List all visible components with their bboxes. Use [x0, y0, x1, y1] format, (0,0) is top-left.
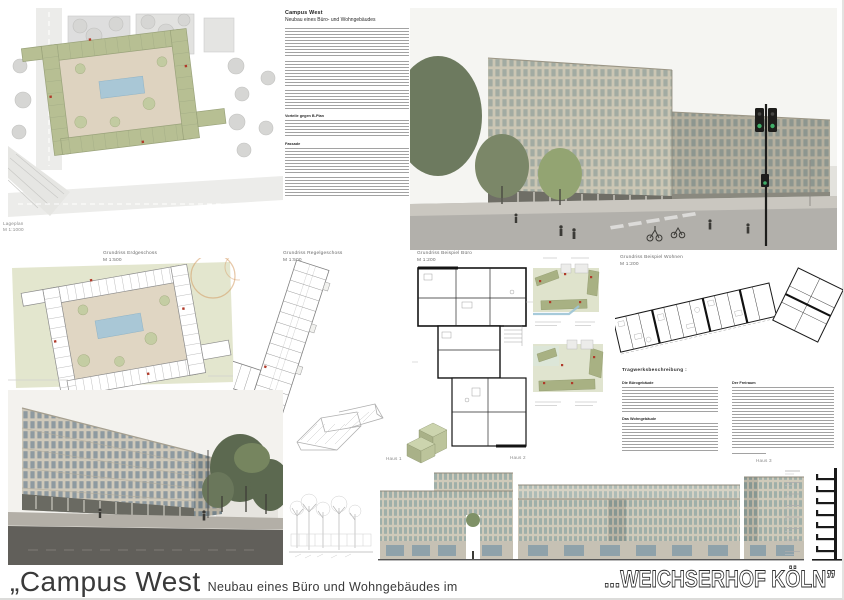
plan-erdgeschoss: [8, 258, 240, 390]
paragraph: [285, 61, 409, 87]
plan-beispiel-wohnen: [615, 266, 843, 366]
project-description: Campus West Neubau eines Büro- und Wohng…: [285, 10, 409, 197]
presentation-board: Lageplan M 1:1000 Campus West Neubau ein…: [0, 0, 844, 600]
paragraph: [622, 387, 718, 413]
board-title-right-text: ...WEICHSERHOF KÖLN”: [604, 566, 836, 593]
ground-line: [378, 559, 804, 560]
description-section1: Vorteile gegen B-Plan: [285, 114, 409, 118]
paragraph: [732, 453, 766, 456]
structure-sub3: Der Freiraum: [732, 381, 834, 385]
structure-heading: Tragwerksbeschreibung :: [622, 368, 836, 373]
elevation-haus1: [380, 473, 513, 559]
structure-col2: Der Freiraum: [732, 377, 834, 456]
paragraph: [285, 90, 409, 110]
street-rendering: [8, 390, 283, 565]
key-diagram-a: [531, 256, 605, 332]
elevation-haus2: [518, 485, 740, 559]
elevation-label-haus1: Haus 1: [386, 456, 402, 461]
board-title-right: ...WEICHSERHOF KÖLN”: [602, 563, 840, 595]
description-title: Campus West: [285, 10, 409, 16]
street-sketch: [287, 490, 377, 566]
site-plan-drawing: [8, 8, 283, 240]
level-dimensions: [784, 466, 810, 562]
building-wing-facade: [672, 112, 830, 206]
paragraph: [285, 120, 409, 138]
structure-sub2: Das Wohngebäude: [622, 417, 718, 421]
description-subtitle: Neubau eines Büro- und Wohngebäudes: [285, 17, 409, 23]
paragraph: [285, 148, 409, 174]
paragraph: [732, 387, 834, 449]
paragraph: [622, 423, 718, 453]
structure-description: Tragwerksbeschreibung : Die Bürogebäude …: [622, 368, 836, 456]
road: [8, 526, 283, 565]
aerial-sketch: [287, 392, 395, 466]
paragraph: [285, 28, 409, 58]
structure-col1: Die Bürogebäude Das Wohngebäude: [622, 377, 718, 456]
structure-sub1: Die Bürogebäude: [622, 381, 718, 385]
facade-section-detail: [812, 464, 842, 564]
description-section2: Fassade: [285, 142, 409, 146]
street-elevation: [378, 463, 810, 565]
board-title: „Campus West Neubau eines Büro und Wohng…: [10, 566, 458, 598]
key-diagram-b: [531, 334, 611, 412]
board-title-sub: Neubau eines Büro und Wohngebäudes im: [208, 580, 458, 594]
board-title-main: „Campus West: [10, 566, 201, 598]
paragraph: [285, 177, 409, 197]
site-plan-label: Lageplan M 1:1000: [3, 221, 24, 234]
elevation-label-haus2: Haus 2: [510, 455, 526, 460]
courtyard-tree: [466, 513, 480, 527]
main-rendering: [410, 8, 837, 250]
